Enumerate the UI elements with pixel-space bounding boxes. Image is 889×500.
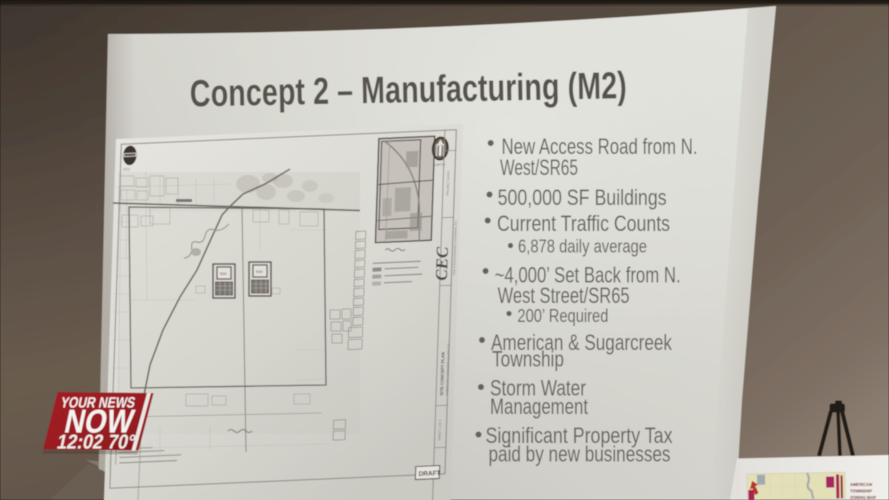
svg-text:PROJECT 65432: PROJECT 65432: [446, 171, 451, 196]
svg-text:200’ Required: 200’ Required: [517, 306, 608, 326]
svg-text:AMERICAN: AMERICAN: [850, 482, 872, 487]
svg-text:West/SR65: West/SR65: [500, 155, 578, 180]
svg-text:500: 500: [256, 269, 263, 274]
svg-text:paid by new businesses: paid by new businesses: [489, 442, 671, 467]
svg-text:500,000 SF Buildings: 500,000 SF Buildings: [498, 185, 667, 210]
svg-text:TOWNSHIP: TOWNSHIP: [850, 489, 872, 494]
svg-text:Management: Management: [490, 394, 588, 419]
svg-text:500: 500: [220, 271, 227, 276]
svg-text:Current Traffic Counts: Current Traffic Counts: [497, 211, 670, 236]
svg-text:West Street/SR65: West Street/SR65: [498, 283, 630, 308]
svg-text:6,878 daily average: 6,878 daily average: [518, 237, 647, 257]
svg-text:CEC: CEC: [123, 167, 131, 171]
svg-text:ZONING MAP: ZONING MAP: [850, 495, 876, 500]
svg-text:12:02 70°: 12:02 70°: [55, 432, 138, 454]
svg-text:Concept 2 – Manufacturing (M2): Concept 2 – Manufacturing (M2): [189, 65, 627, 115]
svg-text:SHEET 1 OF 1: SHEET 1 OF 1: [438, 419, 443, 441]
svg-text:Township: Township: [492, 347, 564, 372]
svg-text:CEC: CEC: [432, 246, 452, 281]
svg-text:DRAFT: DRAFT: [418, 470, 440, 478]
